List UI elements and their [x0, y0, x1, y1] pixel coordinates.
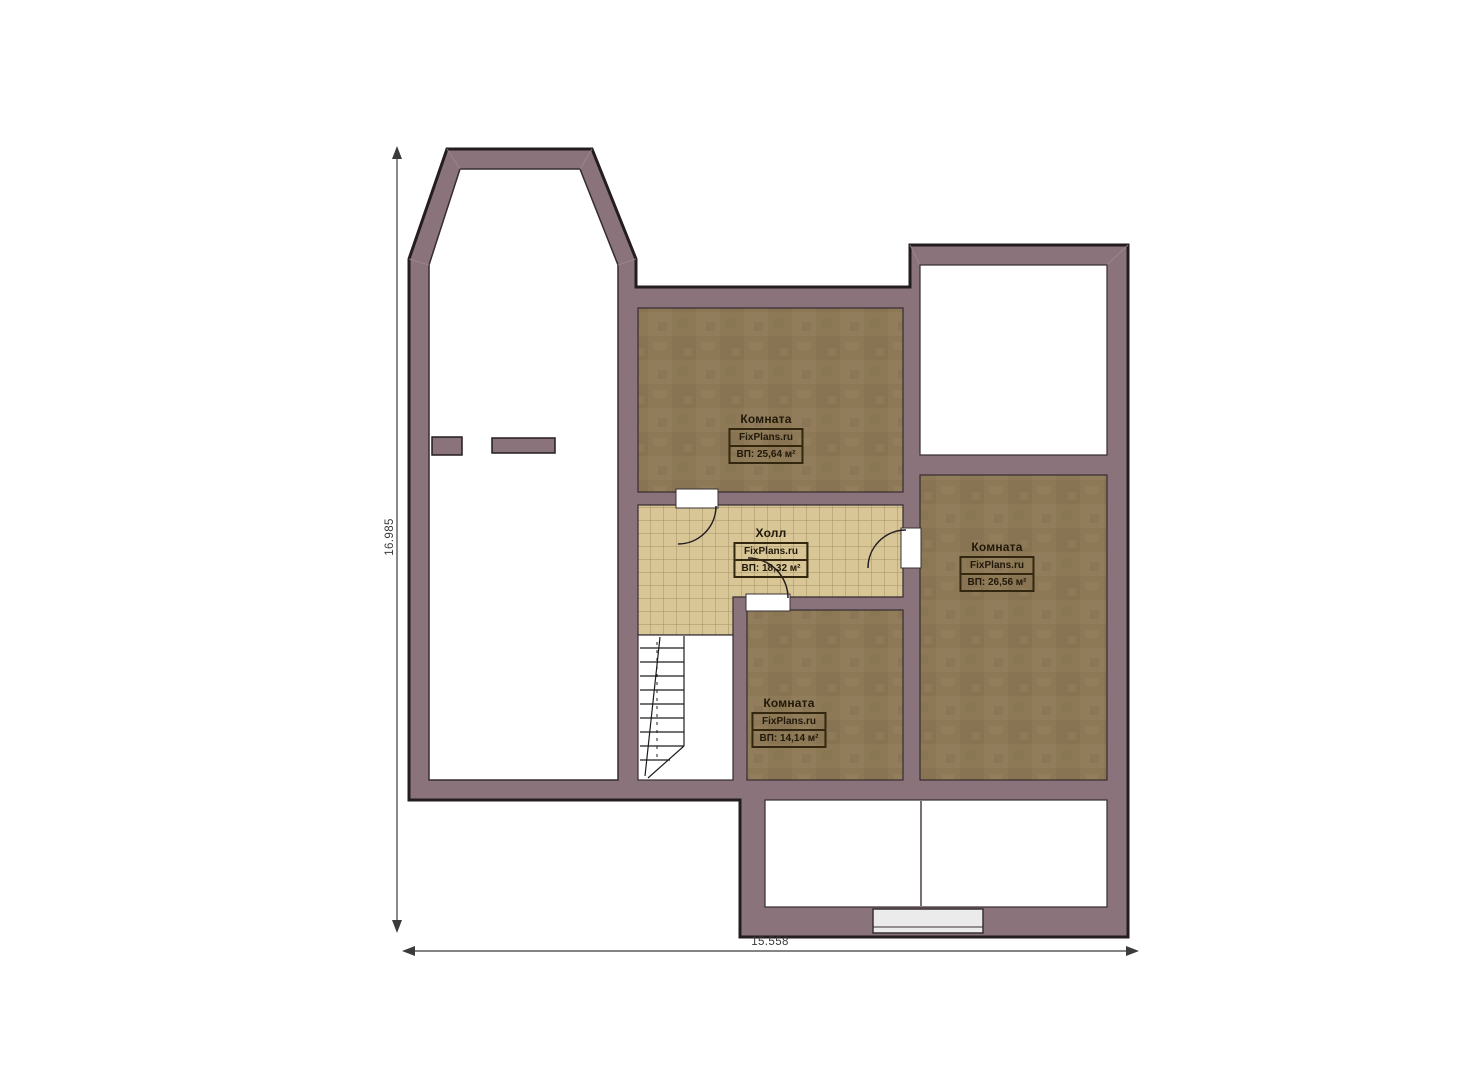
room-top-floor [638, 308, 903, 492]
room-title: Комната [728, 412, 803, 426]
room-title: Комната [751, 696, 826, 710]
wall-stub-long [492, 438, 555, 453]
room-info-box: FixPlans.ru ВП: 26,56 м² [959, 556, 1034, 592]
room-topright-floor [920, 265, 1107, 455]
room-info-box: FixPlans.ru ВП: 18,32 м² [733, 542, 808, 578]
room-label-top: Комната FixPlans.ru ВП: 25,64 м² [728, 412, 803, 464]
floors [638, 265, 1107, 780]
room-area: ВП: 26,56 м² [961, 575, 1032, 590]
brand-text: FixPlans.ru [735, 544, 806, 561]
door-opening-room-top [676, 489, 718, 508]
terrace-floor [765, 800, 1107, 907]
brand-text: FixPlans.ru [753, 714, 824, 731]
room-label-hall: Холл FixPlans.ru ВП: 18,32 м² [733, 526, 808, 578]
room-area: ВП: 18,32 м² [735, 561, 806, 576]
room-area: ВП: 14,14 м² [753, 731, 824, 746]
room-label-right: Комната FixPlans.ru ВП: 26,56 м² [959, 540, 1034, 592]
room-title: Холл [733, 526, 808, 540]
room-label-bottom: Комната FixPlans.ru ВП: 14,14 м² [751, 696, 826, 748]
room-info-box: FixPlans.ru ВП: 14,14 м² [751, 712, 826, 748]
left-area-floor [429, 169, 618, 780]
room-info-box: FixPlans.ru ВП: 25,64 м² [728, 428, 803, 464]
wall-stub-small [432, 437, 462, 455]
brand-text: FixPlans.ru [730, 430, 801, 447]
room-title: Комната [959, 540, 1034, 554]
dimension-horizontal-label: 15.558 [751, 936, 789, 948]
floor-plan-page: Комната FixPlans.ru ВП: 25,64 м² Холл Fi… [0, 0, 1473, 1080]
door-opening-room-bottom [746, 594, 790, 611]
terrace-window [873, 909, 983, 933]
door-opening-room-right [901, 528, 921, 568]
room-right-floor [920, 475, 1107, 780]
dimension-vertical-label: 16.985 [384, 518, 396, 556]
room-bottom-floor [747, 610, 903, 780]
room-area: ВП: 25,64 м² [730, 447, 801, 462]
brand-text: FixPlans.ru [961, 558, 1032, 575]
